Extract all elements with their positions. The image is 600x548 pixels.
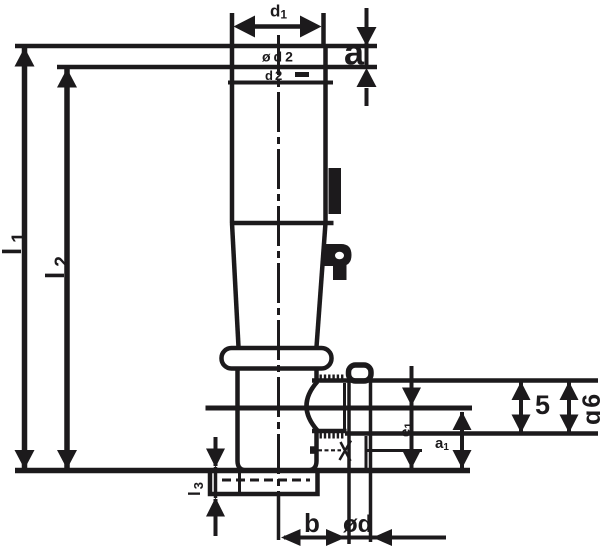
- svg-text:a: a: [344, 32, 365, 73]
- svg-text:g6: g6: [578, 392, 600, 425]
- svg-text:a1: a1: [435, 435, 449, 453]
- svg-text:e1: e1: [397, 423, 415, 437]
- svg-text:ød: ød: [343, 511, 372, 538]
- svg-text:d2: d2: [265, 68, 284, 83]
- svg-text:b: b: [304, 508, 320, 538]
- svg-text:l2: l2: [40, 251, 73, 279]
- svg-text:l3: l3: [185, 480, 206, 496]
- svg-text:l1: l1: [0, 227, 30, 255]
- svg-text:ød2: ød2: [262, 49, 296, 65]
- svg-text:5: 5: [535, 390, 550, 420]
- svg-text:d1: d1: [270, 2, 287, 22]
